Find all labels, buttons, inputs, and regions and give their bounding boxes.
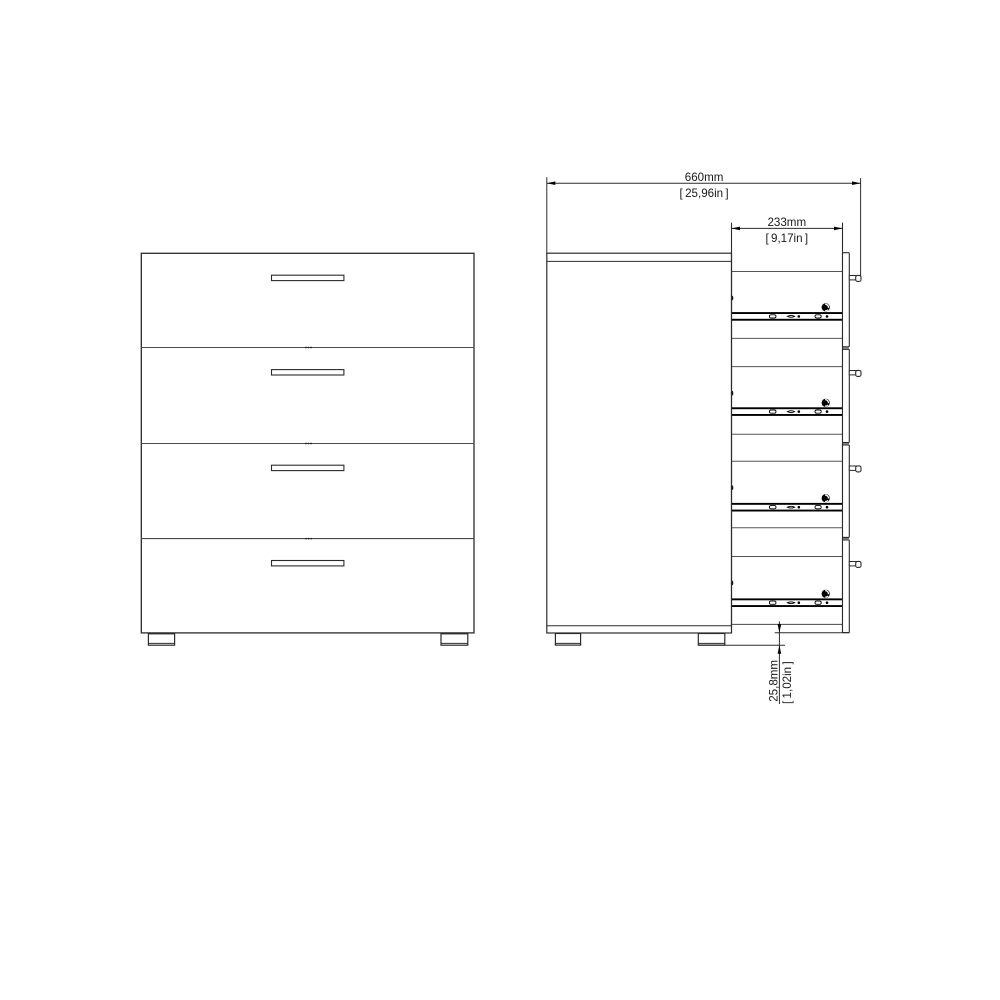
svg-text:660mm: 660mm bbox=[685, 171, 724, 184]
svg-text:[ 1,02in ]: [ 1,02in ] bbox=[781, 661, 794, 704]
svg-text:233mm: 233mm bbox=[767, 216, 806, 229]
svg-text:[ 9,17in ]: [ 9,17in ] bbox=[765, 232, 808, 245]
svg-text:[ 25,96in ]: [ 25,96in ] bbox=[680, 187, 729, 200]
svg-text:25,8mm: 25,8mm bbox=[767, 660, 780, 702]
